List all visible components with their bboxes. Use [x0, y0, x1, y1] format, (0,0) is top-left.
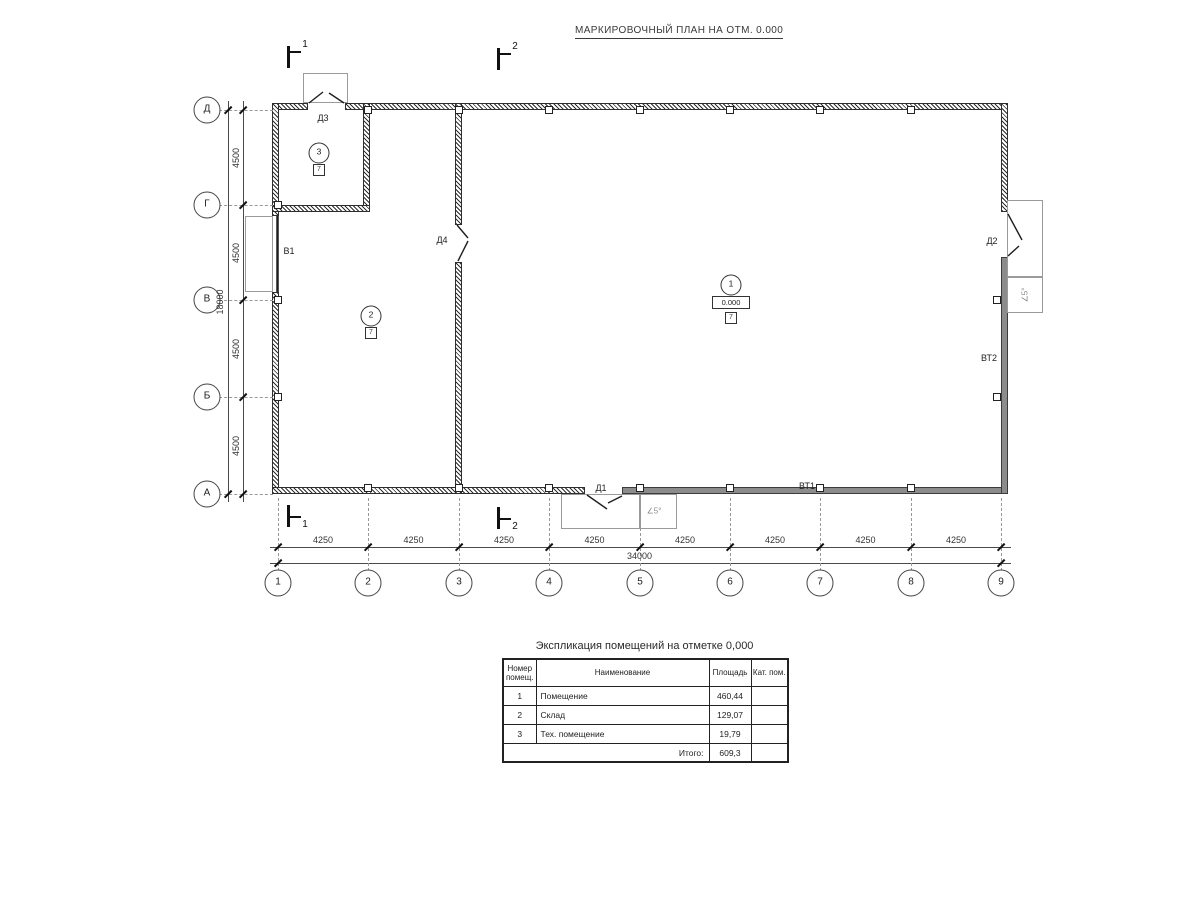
column-marker	[907, 106, 915, 114]
axis-bubble-1: 1	[265, 570, 292, 597]
section-mark-tick-2	[497, 53, 511, 55]
section-mark-label-1: 1	[298, 39, 312, 50]
column-marker	[545, 484, 553, 492]
dim-line-left-segments	[243, 101, 244, 502]
column-marker	[545, 106, 553, 114]
schedule-cell: Тех. помещение	[536, 725, 709, 744]
axis-bubble-5: 5	[627, 570, 654, 597]
room-number-1: 1	[721, 275, 742, 296]
axis-line-7	[820, 498, 821, 571]
dim-value-bottom: 4250	[494, 535, 514, 545]
schedule-cell: 2	[503, 706, 536, 725]
axis-line-Г	[219, 205, 273, 206]
axis-line-3	[459, 498, 460, 571]
schedule-header: Номер помещ.	[503, 659, 536, 687]
column-marker	[726, 484, 734, 492]
column-marker	[274, 296, 282, 304]
dim-value-left: 4500	[231, 338, 241, 358]
door-d2-leaf-top	[1008, 214, 1022, 240]
column-marker	[455, 484, 463, 492]
schedule-cell: Помещение	[536, 687, 709, 706]
section-mark-tick-1	[287, 51, 301, 53]
schedule-row: 1Помещение460,44	[503, 687, 788, 706]
section-mark-label-2: 2	[508, 521, 522, 532]
dim-value-bottom: 4250	[584, 535, 604, 545]
dim-value-left: 4500	[231, 147, 241, 167]
schedule-total-row: Итого:609,3	[503, 744, 788, 763]
axis-line-В	[219, 300, 273, 301]
axis-bubble-9: 9	[988, 570, 1015, 597]
door-d4-leaf-bottom	[458, 241, 468, 261]
axis-bubble-2: 2	[355, 570, 382, 597]
section-mark-tick-2	[497, 518, 511, 520]
dim-value-bottom: 4250	[675, 535, 695, 545]
gate-label-v1: В1	[283, 246, 294, 256]
section-mark-tick-1	[287, 516, 301, 518]
schedule-cell	[751, 744, 788, 763]
column-marker	[636, 484, 644, 492]
door-d3-leaf-right	[329, 93, 344, 103]
dim-value-bottom: 4250	[765, 535, 785, 545]
schedule-total-label: Итого:	[503, 744, 709, 763]
room-number-2: 2	[361, 306, 382, 327]
axis-bubble-Б: Б	[194, 384, 221, 411]
dim-value-bottom: 4250	[946, 535, 966, 545]
axis-line-8	[911, 498, 912, 571]
column-marker	[993, 296, 1001, 304]
axis-line-4	[549, 498, 550, 571]
axis-bubble-6: 6	[717, 570, 744, 597]
slope-label-right: ∠5°	[1021, 288, 1030, 303]
schedule-row: 2Склад129,07	[503, 706, 788, 725]
column-marker	[364, 484, 372, 492]
column-marker	[636, 106, 644, 114]
dim-line-left-total	[228, 101, 229, 502]
schedule-header: Площадь	[709, 659, 751, 687]
column-marker	[274, 201, 282, 209]
axis-line-Б	[219, 397, 273, 398]
axis-line-2	[368, 498, 369, 571]
gate-label-vt1: ВТ1	[799, 481, 815, 491]
schedule-table: Номер помещ.НаименованиеПлощадьКат. пом.…	[502, 658, 789, 763]
floor-plan: 1234567894250425042504250425042504250425…	[0, 0, 1200, 630]
axis-bubble-7: 7	[807, 570, 834, 597]
schedule-header: Наименование	[536, 659, 709, 687]
schedule-cell	[751, 725, 788, 744]
schedule-cell	[751, 687, 788, 706]
room-elevation: 0.000	[712, 296, 750, 309]
axis-bubble-Д: Д	[194, 97, 221, 124]
schedule-row: 3Тех. помещение19,79	[503, 725, 788, 744]
schedule-header: Кат. пом.	[751, 659, 788, 687]
axis-bubble-4: 4	[536, 570, 563, 597]
column-marker	[816, 106, 824, 114]
axis-bubble-3: 3	[446, 570, 473, 597]
room-category-box: 7	[725, 312, 737, 324]
dim-value-bottom: 4250	[855, 535, 875, 545]
section-mark-bar-2	[497, 48, 500, 70]
drawing-sheet: МАРКИРОВОЧНЫЙ ПЛАН НА ОТМ. 0.000	[0, 0, 1200, 900]
schedule-title: Экспликация помещений на отметке 0,000	[502, 640, 787, 652]
column-marker	[993, 393, 1001, 401]
dim-value-bottom: 4250	[313, 535, 333, 545]
column-marker	[726, 106, 734, 114]
axis-line-6	[730, 498, 731, 571]
schedule-total-value: 609,3	[709, 744, 751, 763]
section-mark-label-1: 1	[298, 519, 312, 530]
column-marker	[455, 106, 463, 114]
section-mark-label-2: 2	[508, 41, 522, 52]
door-d4-leaf-top	[457, 225, 468, 238]
column-marker	[364, 106, 372, 114]
column-marker	[907, 484, 915, 492]
schedule-cell: Склад	[536, 706, 709, 725]
dim-total-bottom: 34000	[627, 551, 652, 561]
door-d1-leaf-right	[608, 496, 622, 503]
column-marker	[274, 393, 282, 401]
axis-bubble-А: А	[194, 481, 221, 508]
dim-value-left: 4500	[231, 242, 241, 262]
dim-total-left: 18000	[215, 289, 225, 314]
room-number-3: 3	[309, 143, 330, 164]
door-label-d3: Д3	[317, 113, 328, 123]
door-label-d4: Д4	[436, 235, 447, 245]
dim-value-left: 4500	[231, 435, 241, 455]
schedule-cell: 19,79	[709, 725, 751, 744]
slope-label-bottom: ∠5°	[647, 507, 662, 516]
schedule-cell	[751, 706, 788, 725]
schedule-cell: 129,07	[709, 706, 751, 725]
section-mark-bar-1	[287, 46, 290, 68]
axis-bubble-Г: Г	[194, 192, 221, 219]
dim-value-bottom: 4250	[403, 535, 423, 545]
schedule-cell: 1	[503, 687, 536, 706]
room-category-box: 7	[365, 327, 377, 339]
door-d1-leaf-left	[587, 495, 607, 509]
door-label-d2: Д2	[986, 236, 997, 246]
door-label-d1: Д1	[595, 483, 606, 493]
door-d3-leaf-left	[309, 92, 323, 103]
gate-label-vt2: ВТ2	[981, 353, 997, 363]
schedule-cell: 460,44	[709, 687, 751, 706]
schedule-cell: 3	[503, 725, 536, 744]
axis-bubble-8: 8	[898, 570, 925, 597]
door-d2-leaf-bottom	[1008, 246, 1019, 256]
room-category-box: 7	[313, 164, 325, 176]
column-marker	[816, 484, 824, 492]
